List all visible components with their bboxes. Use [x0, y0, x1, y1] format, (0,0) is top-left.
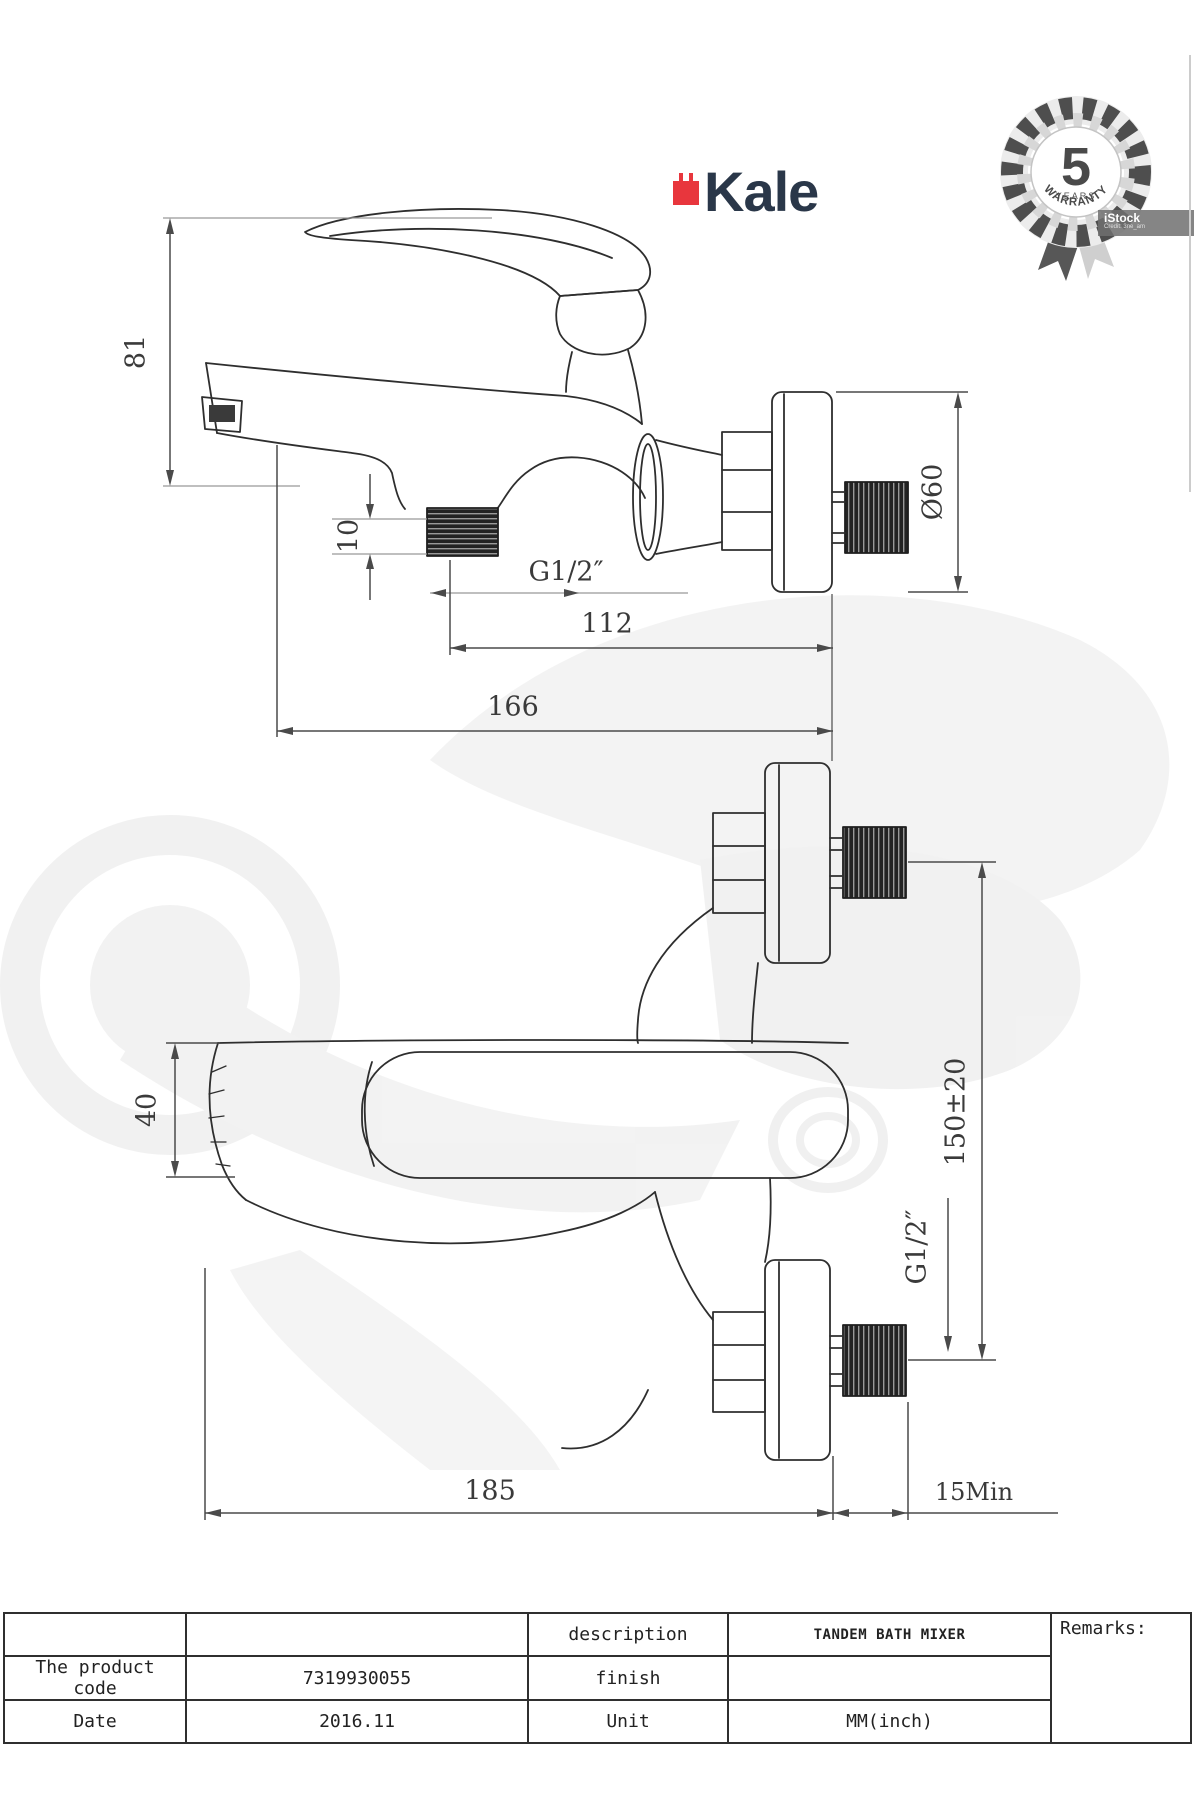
stock-label: iStock: [1104, 212, 1188, 224]
dim-front-handle-width: 40: [134, 1093, 161, 1127]
cell-product-code-label: The product code: [4, 1656, 186, 1700]
stock-credit: Credit: 3ne_am: [1104, 224, 1188, 231]
spec-sheet-page: 81 10 G1/2″ 112 166 Ø60 40 150±20 G1/2″ …: [0, 0, 1200, 1800]
cell-date-value: 2016.11: [186, 1700, 528, 1743]
cell-date-label: Date: [4, 1700, 186, 1743]
cell-unit-value: MM(inch): [728, 1700, 1051, 1743]
cell-remarks: Remarks:: [1051, 1613, 1191, 1743]
dim-side-flange-dia: Ø60: [920, 464, 947, 521]
dim-front-total-width: 185: [464, 1478, 516, 1505]
cell-blank-2: [186, 1613, 528, 1656]
cell-blank-1: [4, 1613, 186, 1656]
dim-front-centers: 150±20: [943, 1058, 970, 1167]
dim-side-thread-length: 10: [336, 519, 363, 553]
spec-table: description TANDEM BATH MIXER Remarks: T…: [3, 1612, 1192, 1744]
table-row: The product code 7319930055 finish: [4, 1656, 1191, 1700]
dim-side-depth-outlet: 112: [581, 611, 633, 638]
kale-castle-icon: [672, 170, 700, 206]
cell-description-label: description: [528, 1613, 728, 1656]
badge-number: 5: [1061, 137, 1091, 197]
table-row: description TANDEM BATH MIXER Remarks:: [4, 1613, 1191, 1656]
photo-edge-line: [1189, 55, 1191, 492]
stock-watermark: iStock Credit: 3ne_am: [1098, 210, 1194, 236]
cell-product-code-value: 7319930055: [186, 1656, 528, 1700]
dim-side-depth-total: 166: [487, 694, 539, 721]
faded-product-photo: [20, 595, 1169, 1470]
cell-unit-label: Unit: [528, 1700, 728, 1743]
brand-wordmark: Kale: [704, 164, 818, 220]
brand-logo: Kale: [672, 164, 818, 220]
dim-side-height: 81: [123, 335, 150, 369]
cell-finish-label: finish: [528, 1656, 728, 1700]
cell-finish-value: [728, 1656, 1051, 1700]
dim-front-thread-size: G1/2″: [904, 1209, 931, 1284]
side-view-drawing: [202, 209, 908, 592]
table-row: Date 2016.11 Unit MM(inch): [4, 1700, 1191, 1743]
dim-side-thread-size: G1/2″: [528, 559, 603, 586]
warranty-badge: 5 YEARS WARRANTY: [992, 82, 1162, 287]
cell-description-value: TANDEM BATH MIXER: [728, 1613, 1051, 1656]
dim-front-wall-min: 15Min: [935, 1480, 1013, 1504]
